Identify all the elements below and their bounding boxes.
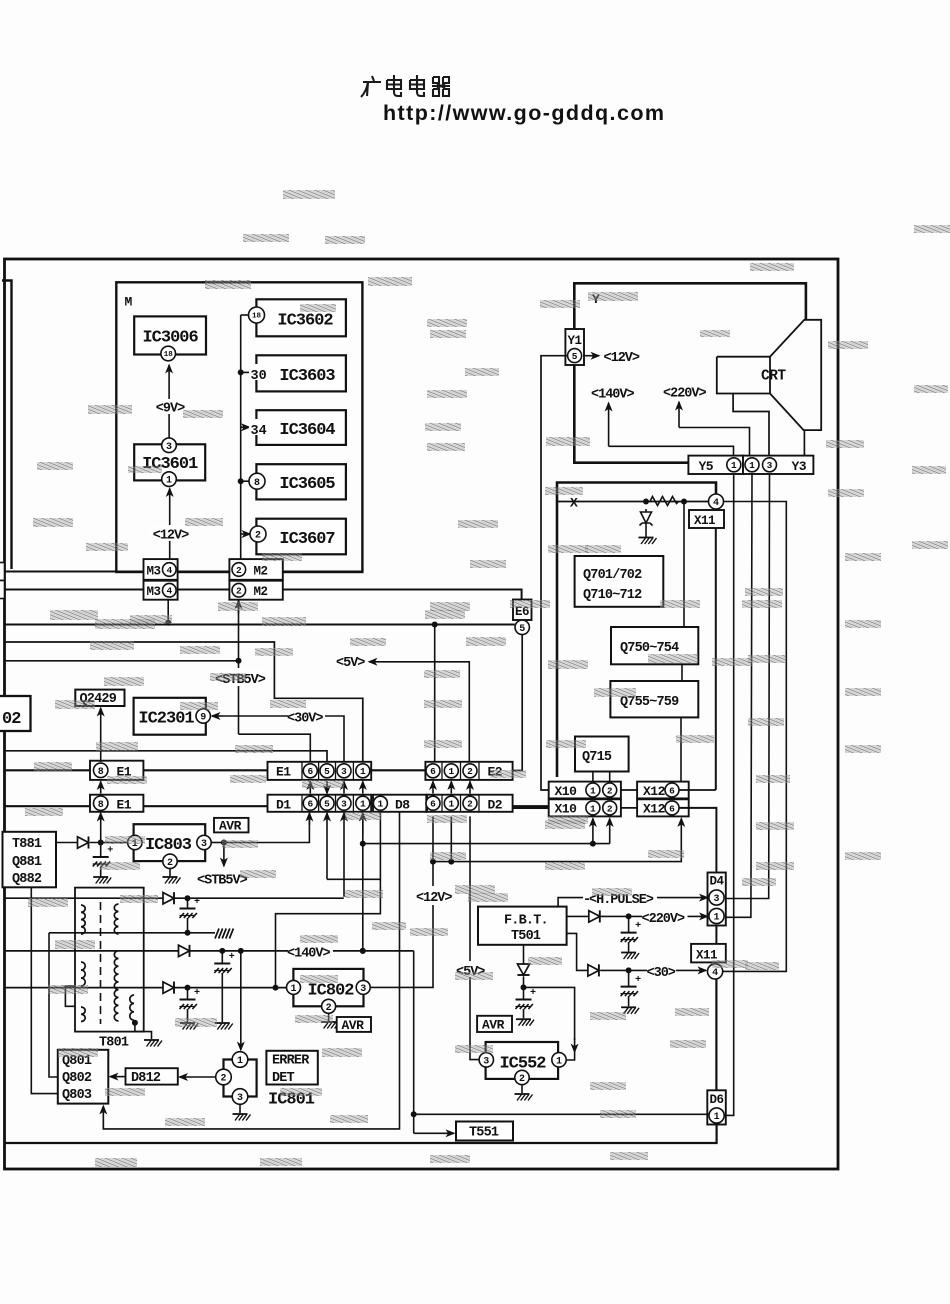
- svg-text:D4: D4: [710, 875, 725, 889]
- svg-text:1: 1: [237, 1056, 243, 1067]
- svg-text:2: 2: [607, 803, 613, 814]
- svg-text:2: 2: [255, 531, 261, 542]
- svg-text:18: 18: [164, 351, 174, 359]
- svg-text:D2: D2: [488, 798, 503, 813]
- svg-text:02: 02: [2, 710, 21, 729]
- svg-text:6: 6: [307, 766, 313, 777]
- svg-text:Q701/702: Q701/702: [583, 568, 642, 583]
- svg-text:6: 6: [307, 799, 313, 810]
- svg-text:X12: X12: [643, 802, 666, 817]
- svg-text:Q715: Q715: [582, 750, 612, 765]
- svg-text:T551: T551: [469, 1126, 499, 1141]
- svg-text:2: 2: [467, 799, 473, 810]
- svg-text:2: 2: [467, 766, 473, 777]
- svg-text:<140V>: <140V>: [287, 947, 331, 962]
- svg-text:4: 4: [166, 586, 172, 597]
- svg-text:+: +: [229, 952, 235, 963]
- svg-text:Q750~754: Q750~754: [620, 641, 679, 656]
- svg-text:2: 2: [236, 586, 242, 597]
- svg-text:+: +: [635, 975, 641, 986]
- svg-text:1: 1: [448, 799, 454, 810]
- svg-text:1: 1: [590, 803, 596, 814]
- svg-text:<220V>: <220V>: [642, 912, 686, 927]
- svg-text:3: 3: [767, 460, 773, 471]
- svg-text:3: 3: [483, 1056, 489, 1067]
- svg-text:1: 1: [378, 799, 384, 810]
- svg-text:+: +: [194, 988, 200, 999]
- svg-text:1: 1: [290, 984, 296, 995]
- svg-text:T881: T881: [12, 837, 42, 852]
- svg-text:CRT: CRT: [761, 369, 786, 385]
- svg-text:30: 30: [251, 369, 267, 384]
- svg-text:IC3006: IC3006: [142, 329, 198, 348]
- svg-text:F.B.T.: F.B.T.: [504, 914, 548, 929]
- svg-text:ERRER: ERRER: [272, 1054, 310, 1069]
- svg-text:M2: M2: [254, 565, 268, 579]
- svg-text:<12V>: <12V>: [153, 529, 189, 544]
- svg-text:3: 3: [166, 442, 172, 453]
- svg-text:Y3: Y3: [792, 459, 807, 474]
- svg-text:T801: T801: [99, 1036, 129, 1051]
- svg-text:T501: T501: [511, 929, 541, 944]
- svg-text:X11: X11: [694, 514, 715, 528]
- svg-text:AVR: AVR: [482, 1018, 505, 1033]
- svg-text:2: 2: [236, 565, 242, 576]
- svg-text:6: 6: [669, 803, 675, 814]
- svg-text:3: 3: [713, 894, 719, 905]
- svg-text:8: 8: [254, 478, 260, 489]
- svg-text:IC803: IC803: [145, 836, 192, 855]
- svg-text:2: 2: [519, 1074, 525, 1085]
- svg-text:1: 1: [713, 913, 719, 924]
- svg-text:5: 5: [519, 624, 525, 635]
- svg-text:1: 1: [749, 460, 755, 471]
- svg-text:3: 3: [360, 984, 366, 995]
- svg-text:<30V>: <30V>: [287, 712, 323, 727]
- svg-text:IC2301: IC2301: [138, 710, 194, 729]
- svg-text:Y1: Y1: [568, 334, 582, 348]
- svg-text:D1: D1: [276, 798, 291, 813]
- svg-text:Q882: Q882: [12, 872, 42, 887]
- svg-text:X: X: [570, 496, 578, 511]
- svg-text:M2: M2: [254, 585, 268, 599]
- svg-text:M: M: [125, 295, 133, 310]
- svg-text:IC3602: IC3602: [277, 312, 333, 331]
- svg-text:D812: D812: [131, 1071, 161, 1086]
- svg-text:X10: X10: [555, 802, 578, 817]
- svg-text:18: 18: [252, 313, 262, 321]
- svg-text:6: 6: [430, 799, 436, 810]
- svg-text:1: 1: [166, 476, 172, 487]
- svg-text:9: 9: [200, 713, 206, 724]
- svg-text:<12V>: <12V>: [416, 891, 452, 906]
- svg-text:3: 3: [201, 839, 207, 850]
- svg-text:D8: D8: [395, 798, 410, 813]
- svg-text:Q710~712: Q710~712: [583, 588, 642, 603]
- svg-text:IC3607: IC3607: [279, 530, 335, 549]
- svg-text:IC3603: IC3603: [279, 367, 335, 386]
- svg-text:2: 2: [326, 1003, 332, 1014]
- svg-text:IC3604: IC3604: [279, 421, 335, 440]
- svg-text:8: 8: [98, 800, 104, 811]
- svg-text:X12: X12: [643, 784, 666, 799]
- svg-text:http://www.go-gddq.com: http://www.go-gddq.com: [383, 101, 664, 125]
- svg-text:+: +: [635, 921, 641, 932]
- svg-text:1: 1: [731, 460, 737, 471]
- svg-text:Q803: Q803: [62, 1088, 92, 1103]
- svg-text:4: 4: [713, 498, 719, 509]
- svg-text:1: 1: [714, 1112, 720, 1123]
- svg-text:3: 3: [341, 799, 347, 810]
- svg-text:Q881: Q881: [12, 855, 42, 870]
- svg-text:3: 3: [341, 766, 347, 777]
- svg-text:<220V>: <220V>: [663, 387, 707, 402]
- svg-text:5: 5: [324, 766, 330, 777]
- svg-text:1: 1: [448, 766, 454, 777]
- svg-text:+: +: [194, 897, 200, 908]
- svg-text:IC3605: IC3605: [279, 475, 335, 494]
- svg-text:E1: E1: [276, 765, 291, 780]
- svg-text:<30>: <30>: [647, 966, 676, 981]
- svg-text:Y5: Y5: [699, 459, 714, 474]
- svg-text:Q755~759: Q755~759: [620, 695, 679, 710]
- svg-text:4: 4: [166, 565, 172, 576]
- svg-text:E1: E1: [117, 798, 132, 813]
- svg-text:+: +: [107, 846, 113, 857]
- svg-text:M3: M3: [147, 585, 161, 599]
- svg-text:<5V>: <5V>: [336, 656, 365, 671]
- svg-text:3: 3: [237, 1093, 243, 1104]
- svg-text:<9V>: <9V>: [156, 402, 185, 417]
- svg-text:Q802: Q802: [62, 1071, 92, 1086]
- svg-text:4: 4: [712, 968, 718, 979]
- svg-text:+: +: [530, 988, 536, 999]
- svg-text:AVR: AVR: [342, 1018, 365, 1033]
- svg-text:6: 6: [430, 766, 436, 777]
- svg-text:2: 2: [220, 1074, 226, 1085]
- svg-text:1: 1: [360, 766, 366, 777]
- svg-text:1: 1: [556, 1056, 562, 1067]
- svg-text:5: 5: [572, 351, 578, 362]
- svg-text:2: 2: [607, 785, 613, 796]
- svg-text:<140V>: <140V>: [591, 388, 635, 403]
- svg-text:1: 1: [360, 799, 366, 810]
- svg-text:<12V>: <12V>: [604, 351, 640, 366]
- svg-text:D6: D6: [710, 1093, 724, 1107]
- svg-text:34: 34: [251, 424, 267, 439]
- svg-text:6: 6: [669, 785, 675, 796]
- svg-text:2: 2: [167, 858, 173, 869]
- svg-text:DET: DET: [272, 1071, 295, 1086]
- svg-text:1: 1: [590, 785, 596, 796]
- svg-text:M3: M3: [147, 565, 161, 579]
- svg-text:IC802: IC802: [307, 982, 354, 1001]
- svg-text:AVR: AVR: [219, 819, 242, 834]
- svg-text:X10: X10: [555, 784, 578, 799]
- svg-text:5: 5: [324, 799, 330, 810]
- svg-text:8: 8: [98, 767, 104, 778]
